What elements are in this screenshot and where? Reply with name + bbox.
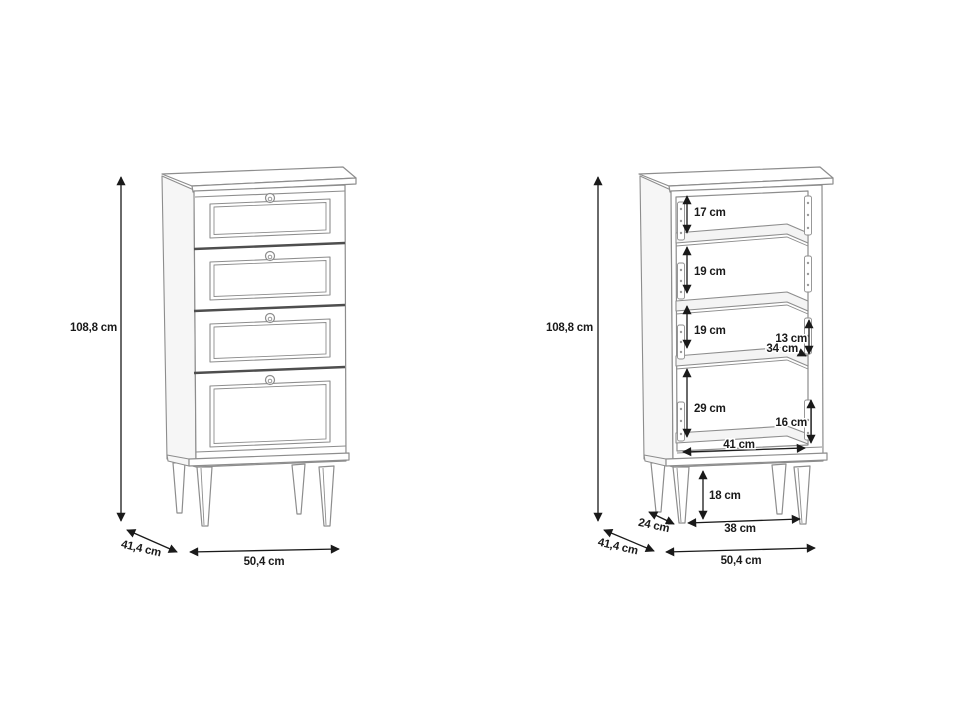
furniture-dimension-diagram: 108,8 cm 41,4 cm 50,4 cm bbox=[0, 0, 970, 704]
cabinet-front bbox=[194, 185, 346, 467]
dim-label-width: 50,4 cm bbox=[244, 556, 285, 568]
dim-label-leg-width-span: 38 cm bbox=[724, 523, 756, 535]
dim-label-side-lower: 16 cm bbox=[775, 417, 807, 429]
cabinet-side-panel bbox=[640, 176, 673, 467]
dim-label-compartment2: 19 cm bbox=[694, 266, 726, 278]
dim-label-inner-depth: 34 cm bbox=[766, 343, 798, 355]
dim-label-height: 108,8 cm bbox=[546, 322, 593, 334]
diagram-svg: 108,8 cm 41,4 cm 50,4 cm bbox=[0, 0, 970, 704]
dim-label-height: 108,8 cm bbox=[70, 322, 117, 334]
dim-label-compartment4: 29 cm bbox=[694, 403, 726, 415]
page-background bbox=[0, 0, 970, 704]
dim-label-width: 50,4 cm bbox=[721, 555, 762, 567]
dim-label-compartment3: 19 cm bbox=[694, 325, 726, 337]
dim-label-compartment1: 17 cm bbox=[694, 207, 726, 219]
cabinet-side-panel bbox=[162, 176, 196, 467]
dim-label-leg-height: 18 cm bbox=[709, 490, 741, 502]
dim-label-inner-width: 41 cm bbox=[723, 439, 755, 451]
